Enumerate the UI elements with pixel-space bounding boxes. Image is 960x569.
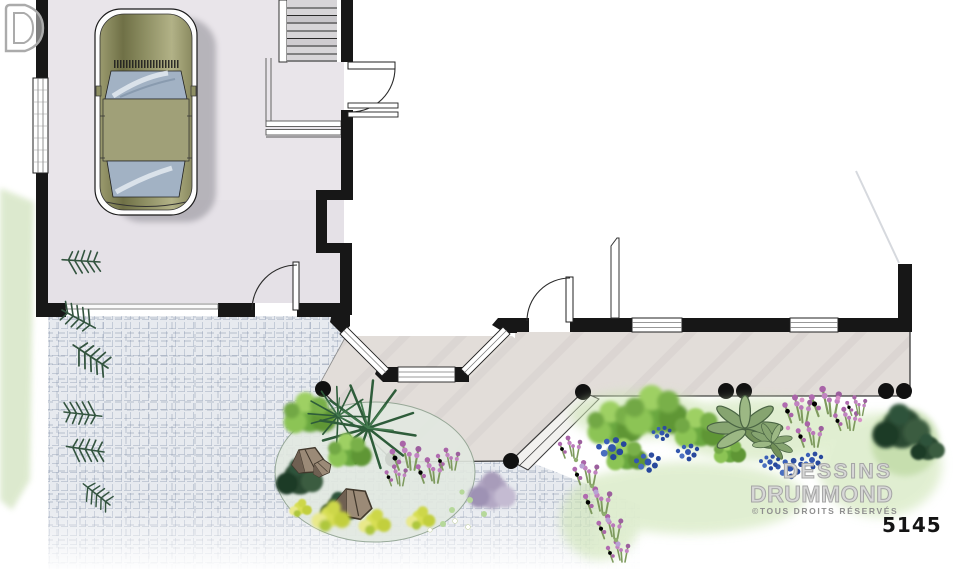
garage-overhead-door bbox=[66, 304, 218, 309]
left-hedge-ground bbox=[0, 188, 34, 510]
site-plan-drawing bbox=[0, 0, 960, 569]
front-entry-door bbox=[527, 277, 573, 322]
garage-window bbox=[33, 78, 48, 173]
floor-plan-canvas: DESSINS DRUMMOND ©TOUS DROITS RÉSERVÉS 5… bbox=[0, 0, 960, 569]
interior-door bbox=[348, 62, 398, 117]
staircase bbox=[279, 0, 337, 62]
car-top-view bbox=[95, 9, 216, 222]
interior-partition-wall bbox=[611, 238, 619, 318]
cut-line bbox=[856, 171, 899, 263]
